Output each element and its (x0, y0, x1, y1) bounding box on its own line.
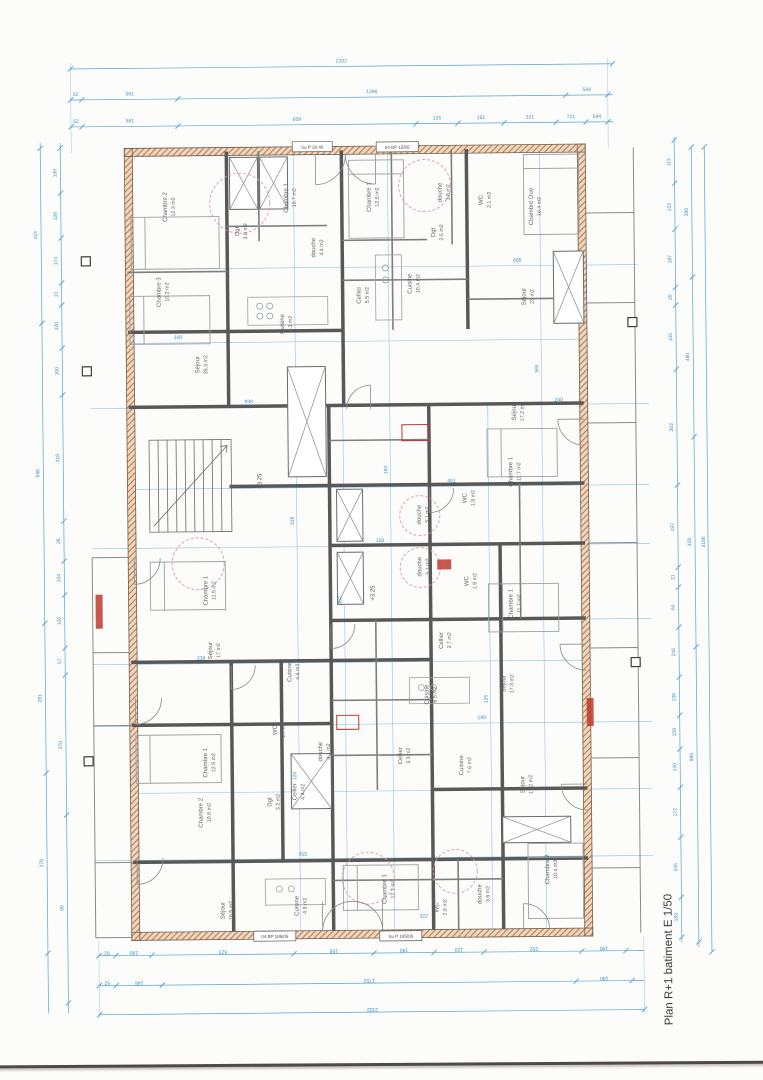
room-area: 3.8 m2 (446, 184, 452, 200)
room-label: Cuisine4.9 m2 (294, 895, 308, 916)
dim: 158 (672, 728, 678, 737)
room-area: 11.5 m2 (211, 581, 217, 600)
dim: 458 (687, 538, 693, 547)
column-post (628, 318, 637, 327)
room-name: douche (477, 884, 483, 904)
room-label: WC2.9 m2 (434, 899, 448, 915)
dim: 190 (600, 975, 609, 981)
room-name: douche (318, 741, 324, 761)
room-name: Cuisine (407, 273, 413, 294)
dim: 174 (53, 257, 59, 266)
dim-top-total: 2102 (336, 58, 347, 64)
room-label: Chambre Duo16.4 m2 (529, 187, 543, 225)
room-name: Chambre 1 (203, 747, 209, 777)
room-name: Cuisine (294, 895, 300, 916)
dim: 125 (483, 695, 489, 704)
dim: 120 (292, 771, 298, 780)
room-area: 4.4 m2 (300, 784, 306, 800)
room-name: Dgt (267, 797, 273, 807)
dim: 187 (667, 255, 673, 264)
room-label: Chambre 210.6 m2 (198, 797, 212, 827)
room-area: 1.9 m2 (472, 573, 478, 589)
dim: 64 (671, 604, 677, 610)
room-name: Séjour (501, 675, 507, 692)
dim: 938 (244, 399, 253, 405)
room-label: douche5.1 m2 (417, 504, 431, 524)
room-label: douche4.4 m2 (311, 237, 325, 257)
room-area: 35.3 m2 (203, 355, 209, 374)
dim: 321 (526, 115, 535, 121)
room-area: 3.6 m2 (485, 886, 491, 902)
room-area: 17 m2 (216, 643, 222, 658)
dim: 105 (668, 333, 674, 342)
dim: 100 (54, 367, 60, 376)
room-area: 4.1 m2 (326, 743, 332, 759)
dim: 52 (104, 950, 110, 956)
dim: 136 (671, 693, 677, 702)
scanned-floor-plan-page: 2102 52 561 1396 544 52 561 609 125 181 … (0, 0, 763, 1080)
dim: 123 (667, 203, 673, 212)
dim: 100 (174, 335, 183, 341)
room-area: 10.4 m2 (415, 274, 421, 293)
dim: 561 (126, 118, 135, 124)
room-name: Chambre 2 (198, 797, 204, 827)
room-name: Cuisine (280, 313, 286, 334)
room-area: 12.1 m2 (390, 879, 396, 898)
dim: 245 (673, 863, 679, 872)
room-label: douche3.6 m2 (477, 883, 491, 903)
room-area: 16.5 m2 (228, 901, 234, 920)
room-area: 17.2 m2 (520, 402, 526, 421)
room-area: 12.5 m2 (211, 753, 217, 772)
dim: 104 (56, 574, 62, 583)
room-name: Cuisine (287, 661, 293, 682)
room-area: 10.4 m2 (553, 860, 559, 879)
dim: 1396 (366, 89, 377, 95)
room-area: 16.4 m2 (537, 197, 543, 216)
room-name: Chambre 3 (156, 277, 162, 307)
room-label: WC2.1 m2 (479, 192, 493, 208)
dim: 21 (670, 574, 676, 580)
room-label: Séjour23 m2 (522, 288, 536, 305)
room-area: 1.7 m2 (281, 722, 287, 738)
level-marker: +3.25 (370, 585, 376, 601)
room-name: Séjour (522, 288, 528, 305)
dim: 240 (554, 397, 563, 403)
dim: 190 (130, 949, 139, 955)
dim: 190 (400, 947, 409, 953)
room-name: douche (417, 504, 423, 524)
dim: 57 (57, 658, 63, 664)
room-area: 6.5 m2 (432, 686, 438, 702)
room-label: Chambre 110.7 m2 (284, 182, 298, 212)
room-label: Dgt3.8 m2 (235, 223, 249, 239)
room-area: 11.7 m2 (517, 594, 523, 613)
dim: 148 (135, 979, 144, 985)
room-area: 2.5 m2 (439, 224, 445, 240)
room-name: douche (311, 237, 317, 257)
room-area: 17.3 m2 (509, 674, 515, 693)
plan-title: Plan R+1 batiment E 1/50 (662, 894, 675, 1025)
dim: 190 (600, 945, 609, 951)
dim: 52 (73, 92, 79, 98)
dim: 565 (534, 364, 540, 373)
dim: 270 (58, 741, 64, 750)
room-area: 4.6 m2 (295, 664, 301, 680)
dim: 281 (37, 694, 43, 703)
room-label: Séjour17.3 m2 (501, 674, 515, 693)
dim: 598 (35, 469, 41, 478)
dim: 1752 (363, 977, 374, 983)
room-label: Chambre 310.2 m2 (156, 277, 170, 307)
room-label: Dgt3.2 m2 (267, 794, 281, 810)
dim: 318 (290, 516, 296, 525)
room-name: WC (273, 724, 279, 735)
room-label: Chambre 112.5 m2 (367, 181, 381, 211)
dim: 990 (689, 753, 695, 762)
room-label: Chambre 112.5 m2 (203, 747, 217, 777)
room-name: Cellier (357, 287, 363, 304)
room-label: Cellier5.5 m2 (357, 287, 371, 304)
room-area: 12.5 m2 (375, 187, 381, 206)
room-area: 23 m2 (530, 289, 536, 304)
dim: 120 (57, 617, 63, 626)
room-name: Cuisine (459, 755, 465, 776)
room-label: Séjour35.3 m2 (195, 355, 209, 374)
room-label: WC1.9 m2 (463, 490, 477, 506)
opening-tag: 04 BP 15/05 (385, 145, 410, 150)
dim: 190 (478, 715, 487, 721)
room-area: 3.3 m2 (406, 748, 412, 764)
room-name: Cuisine (424, 684, 430, 705)
room-area: 4.4 m2 (319, 239, 325, 255)
dim: 202 (530, 946, 539, 952)
room-name: douche (438, 182, 444, 202)
room-name: Dgt (431, 227, 437, 237)
dim: 246 (671, 648, 677, 657)
dim: 302 (669, 423, 675, 432)
room-area: 17.2 m2 (528, 775, 534, 794)
dim: 120 (672, 763, 678, 772)
floor-plan-svg: 2102 52 561 1396 544 52 561 609 125 181 … (0, 0, 763, 1080)
room-name: WC (464, 575, 470, 586)
room-name: Chambre 1 (284, 182, 290, 212)
room-label: Séjour17.2 m2 (512, 402, 526, 421)
level-marker: +3.25 (257, 473, 263, 489)
room-name: Cellier (398, 747, 404, 764)
dim: 424 (33, 231, 39, 240)
room-area: 2.1 m2 (487, 192, 493, 208)
room-label: Cellier3.3 m2 (398, 747, 412, 764)
room-area: 12.3 m2 (171, 197, 177, 216)
room-name: Séjour (512, 403, 518, 420)
room-label: Séjour16.5 m2 (220, 901, 234, 920)
dim: 197 (670, 523, 676, 532)
room-name: Chambre 2 (545, 854, 551, 884)
dim: 451 (447, 478, 456, 484)
room-label: douche3.8 m2 (438, 182, 452, 202)
room-area: 5.1 m2 (425, 506, 431, 522)
room-label: Cellier2.7 m2 (439, 632, 453, 649)
room-name: Chambre 1 (508, 588, 514, 618)
dim: 26 (56, 538, 62, 544)
dim: 172 (673, 808, 679, 817)
room-name: Séjour (208, 642, 214, 659)
dim: 623 (219, 949, 228, 955)
dim: 120 (53, 212, 59, 221)
room-label: Cuisine4.6 m2 (287, 661, 301, 682)
dim: 915 (299, 852, 308, 858)
room-label: WC1.9 m2 (464, 573, 478, 589)
room-area: 5.5 m2 (365, 287, 371, 303)
opening-tag: 04 BP 185/05 (261, 934, 289, 939)
dim: 113 (666, 158, 672, 166)
dim: 302 (338, 596, 344, 605)
column-post (81, 257, 90, 266)
room-name: Chambre 1 (367, 182, 373, 212)
room-name: WC (479, 194, 485, 205)
room-name: WC (434, 902, 440, 913)
opening-tag: Su P 185/05 (388, 934, 413, 939)
column-post (82, 367, 91, 376)
dim: 52 (104, 980, 110, 986)
room-area: 10.6 m2 (207, 803, 213, 822)
dim: 52 (73, 119, 79, 125)
room-area: 10.2 m2 (165, 282, 171, 301)
room-area: 2.7 m2 (447, 632, 453, 648)
dim-bottom-total: 2102 (367, 1006, 378, 1012)
room-area: 5.1 m2 (425, 558, 431, 574)
staircase (149, 439, 232, 532)
dim: 318 (55, 454, 61, 463)
dim: 181 (477, 115, 486, 121)
dim: 278 (39, 859, 45, 868)
room-name: douche (417, 556, 423, 576)
dim: 238 (197, 656, 206, 662)
room-area: 10.7 m2 (292, 188, 298, 207)
room-area: 3.8 m2 (243, 223, 249, 239)
room-label: Cuisine10.4 m2 (407, 273, 421, 294)
room-area: 1.9 m2 (471, 490, 477, 506)
dim: 561 (126, 91, 135, 97)
dim: 125 (433, 115, 442, 121)
dim: 322 (419, 914, 428, 920)
dim: 90 (59, 905, 65, 911)
room-name: WC (463, 492, 469, 503)
dim: 130 (52, 169, 58, 178)
room-label: Séjour17.2 m2 (520, 775, 534, 794)
room-area: 4.9 m2 (302, 898, 308, 914)
room-label: Chambre 111.5 m2 (203, 575, 217, 605)
room-name: Chambre Duo (529, 187, 535, 225)
dim: 544 (582, 87, 591, 93)
room-area: 11.7 m2 (516, 462, 522, 481)
room-name: Cellier (439, 632, 445, 649)
room-area: 7.6 m2 (467, 757, 473, 773)
drawing-area: 2102 52 561 1396 544 52 561 609 125 181 … (0, 0, 763, 1080)
room-label: Séjour17 m2 (208, 642, 222, 659)
opening-tag: Su P 20.40 (301, 145, 324, 150)
room-label: Cuisine7.6 m2 (459, 754, 473, 775)
column-post (84, 757, 93, 766)
opening-tags: Su P 20.40 04 BP 15/05 04 BP 185/05 Su P… (246, 141, 426, 943)
dim: 21 (54, 291, 60, 297)
dim: 609 (293, 117, 302, 123)
room-name: Séjour (520, 776, 526, 793)
dim: 159 (330, 947, 339, 953)
dim: 721 (567, 114, 576, 120)
dim: 480 (685, 353, 691, 362)
dim: 390 (684, 208, 690, 217)
room-label: Dgt2.5 m2 (431, 224, 445, 240)
dim: 665 (513, 258, 522, 264)
room-label: douche5.1 m2 (417, 556, 431, 576)
room-name: Chambre 1 (382, 873, 388, 903)
dim: 120 (455, 946, 464, 952)
room-name: Chambre 1 (203, 575, 209, 605)
room-name: Cellier (292, 783, 298, 800)
room-name: Séjour (195, 356, 201, 373)
room-name: Dgt (235, 226, 241, 236)
room-area: 7.3 m2 (288, 316, 294, 332)
room-area: 2.9 m2 (442, 899, 448, 915)
dim: 544 (593, 114, 602, 120)
dim: 158 (376, 538, 385, 544)
room-name: Séjour (220, 902, 226, 919)
dim: 120 (54, 322, 60, 331)
dim-right-grand-total: 3186 (701, 536, 707, 547)
room-name: Chambre 1 (508, 456, 514, 486)
room-name: Chambre 2 (163, 192, 169, 222)
dim: 20 (668, 294, 674, 300)
column-post (631, 658, 640, 667)
dim: 160 (383, 466, 389, 475)
room-area: 3.2 m2 (275, 794, 281, 810)
